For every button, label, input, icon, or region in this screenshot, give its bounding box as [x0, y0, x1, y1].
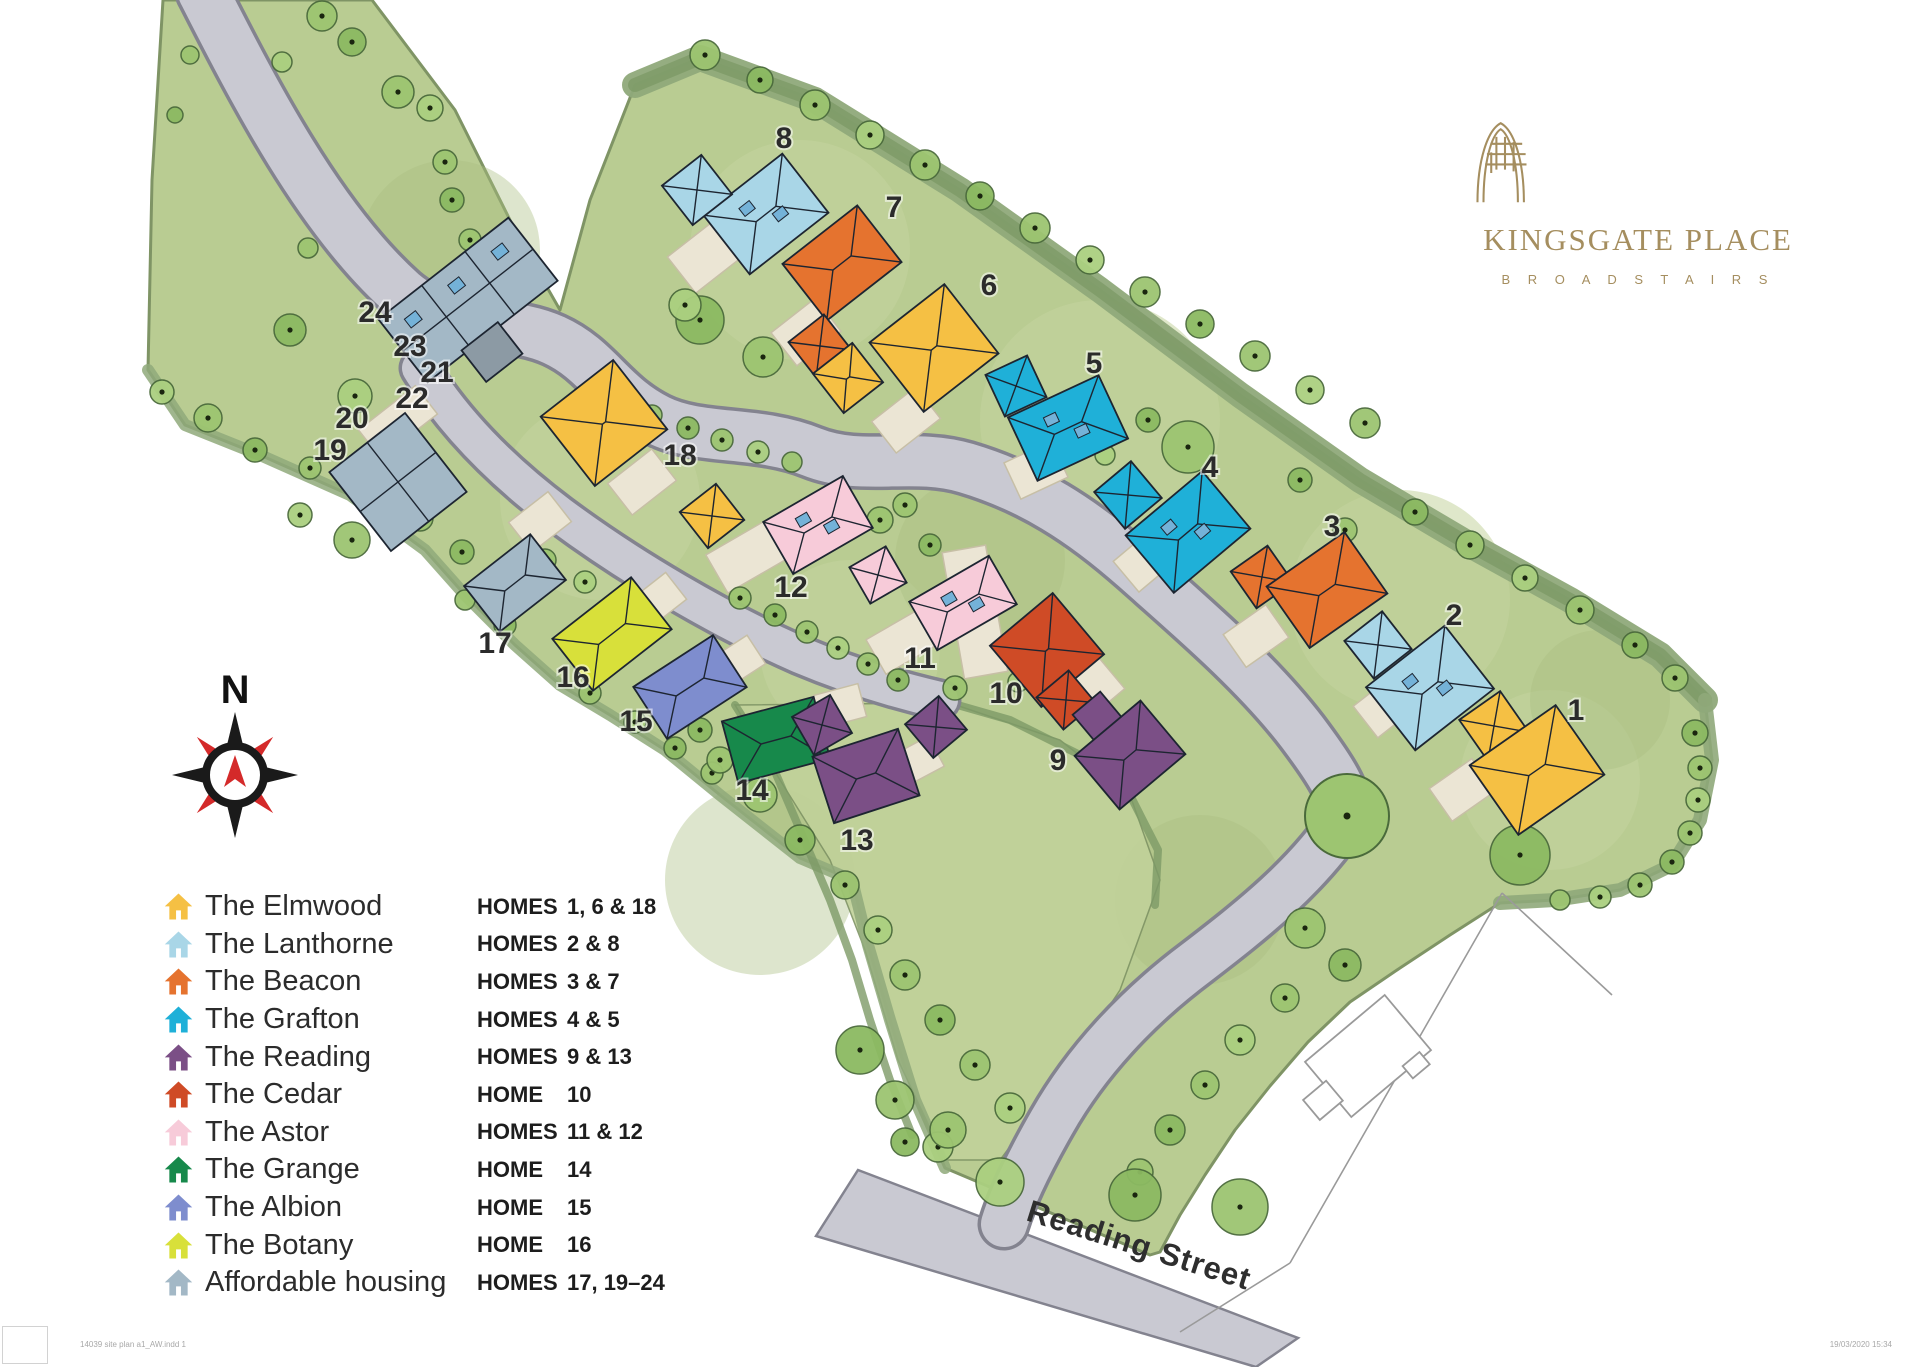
arch-icon: [1462, 118, 1539, 204]
tree-icon: [1550, 890, 1570, 910]
plot-number-24: 24: [358, 296, 392, 329]
plot-number-15: 15: [619, 705, 652, 738]
house-icon: [163, 1268, 205, 1297]
compass-rose: N: [159, 668, 312, 851]
plot-number-19: 19: [313, 434, 346, 467]
development-logo: KINGSGATE PLACE B R O A D S T A I R S: [1462, 118, 1814, 287]
homes-numbers: 14: [561, 1157, 665, 1183]
homes-word: HOMES: [477, 1007, 561, 1033]
homes-numbers: 15: [561, 1195, 665, 1221]
homes-word: HOMES: [477, 969, 561, 995]
house-icon: [163, 1193, 205, 1222]
legend-row-grafton: The GraftonHOMES4 & 5: [163, 1001, 665, 1039]
homes-numbers: 3 & 7: [561, 969, 665, 995]
plot-number-14: 14: [735, 774, 769, 807]
homes-numbers: 1, 6 & 18: [561, 894, 665, 920]
house-type-name: The Reading: [205, 1041, 477, 1074]
plot-number-6: 6: [981, 269, 998, 302]
homes-word: HOMES: [477, 1270, 561, 1296]
homes-numbers: 17, 19–24: [561, 1270, 665, 1296]
compass-north-label: N: [221, 668, 250, 712]
house-type-name: The Grafton: [205, 1003, 477, 1036]
tree-icon: [167, 107, 183, 123]
logo-subtitle: B R O A D S T A I R S: [1462, 272, 1814, 287]
homes-word: HOME: [477, 1082, 561, 1108]
plot-number-7: 7: [886, 191, 903, 224]
logo-title: KINGSGATE PLACE: [1462, 222, 1814, 258]
house-icon: [163, 967, 205, 996]
compass-star-icon: [159, 699, 312, 852]
legend-row-astor: The AstorHOMES11 & 12: [163, 1114, 665, 1152]
house-icon: [163, 1043, 205, 1072]
house-icon: [163, 1080, 205, 1109]
house-type-name: The Botany: [205, 1229, 477, 1262]
house-types-legend: The ElmwoodHOMES1, 6 & 18The LanthorneHO…: [163, 888, 665, 1302]
plot-number-17: 17: [478, 627, 511, 660]
plot-number-3: 3: [1324, 510, 1341, 543]
house-type-name: Affordable housing: [205, 1266, 477, 1299]
plot-number-12: 12: [774, 571, 807, 604]
homes-word: HOME: [477, 1232, 561, 1258]
plot-number-22: 22: [395, 382, 428, 415]
tree-icon: [272, 52, 292, 72]
legend-row-lanthorne: The LanthorneHOMES2 & 8: [163, 926, 665, 964]
plot-number-16: 16: [556, 661, 589, 694]
plot-number-1: 1: [1568, 694, 1585, 727]
legend-row-reading: The ReadingHOMES9 & 13: [163, 1038, 665, 1076]
print-file-label: 14039 site plan a1_AW.indd 1: [80, 1340, 186, 1349]
plot-number-18: 18: [663, 439, 696, 472]
house-icon: [163, 1231, 205, 1260]
legend-row-botany: The BotanyHOME16: [163, 1226, 665, 1264]
legend-row-beacon: The BeaconHOMES3 & 7: [163, 963, 665, 1001]
homes-word: HOMES: [477, 1119, 561, 1145]
plot-number-23: 23: [393, 330, 426, 363]
house-icon: [163, 1118, 205, 1147]
print-timestamp-label: 19/03/2020 15:34: [1830, 1340, 1892, 1349]
plot-number-9: 9: [1050, 744, 1067, 777]
tree-icon: [181, 46, 199, 64]
house-type-name: The Lanthorne: [205, 928, 477, 961]
legend-row-affordable: Affordable housingHOMES17, 19–24: [163, 1264, 665, 1302]
plot-number-2: 2: [1446, 599, 1463, 632]
tree-icon: [298, 238, 318, 258]
house-type-name: The Cedar: [205, 1078, 477, 1111]
homes-numbers: 11 & 12: [561, 1119, 665, 1145]
homes-numbers: 10: [561, 1082, 665, 1108]
plot-number-4: 4: [1202, 451, 1219, 484]
house-type-name: The Elmwood: [205, 890, 477, 923]
homes-numbers: 9 & 13: [561, 1044, 665, 1070]
legend-row-grange: The GrangeHOME14: [163, 1151, 665, 1189]
plot-number-10: 10: [989, 677, 1022, 710]
homes-numbers: 16: [561, 1232, 665, 1258]
plot-number-13: 13: [840, 824, 873, 857]
homes-word: HOMES: [477, 1044, 561, 1070]
homes-word: HOMES: [477, 894, 561, 920]
house-type-name: The Grange: [205, 1153, 477, 1186]
legend-row-elmwood: The ElmwoodHOMES1, 6 & 18: [163, 888, 665, 926]
plot-number-5: 5: [1086, 347, 1103, 380]
house-type-name: The Albion: [205, 1191, 477, 1224]
house-icon: [163, 892, 205, 921]
legend-row-cedar: The CedarHOME10: [163, 1076, 665, 1114]
tree-icon: [782, 452, 802, 472]
legend-row-albion: The AlbionHOME15: [163, 1189, 665, 1227]
plot-number-20: 20: [335, 402, 368, 435]
print-corner-mark: [2, 1326, 48, 1364]
house-type-name: The Astor: [205, 1116, 477, 1149]
homes-numbers: 4 & 5: [561, 1007, 665, 1033]
homes-word: HOME: [477, 1195, 561, 1221]
house-icon: [163, 1005, 205, 1034]
house-icon: [163, 930, 205, 959]
house-icon: [163, 1155, 205, 1184]
plot-number-11: 11: [904, 642, 936, 675]
homes-word: HOME: [477, 1157, 561, 1183]
plot-number-8: 8: [776, 122, 793, 155]
homes-numbers: 2 & 8: [561, 931, 665, 957]
homes-word: HOMES: [477, 931, 561, 957]
house-type-name: The Beacon: [205, 965, 477, 998]
